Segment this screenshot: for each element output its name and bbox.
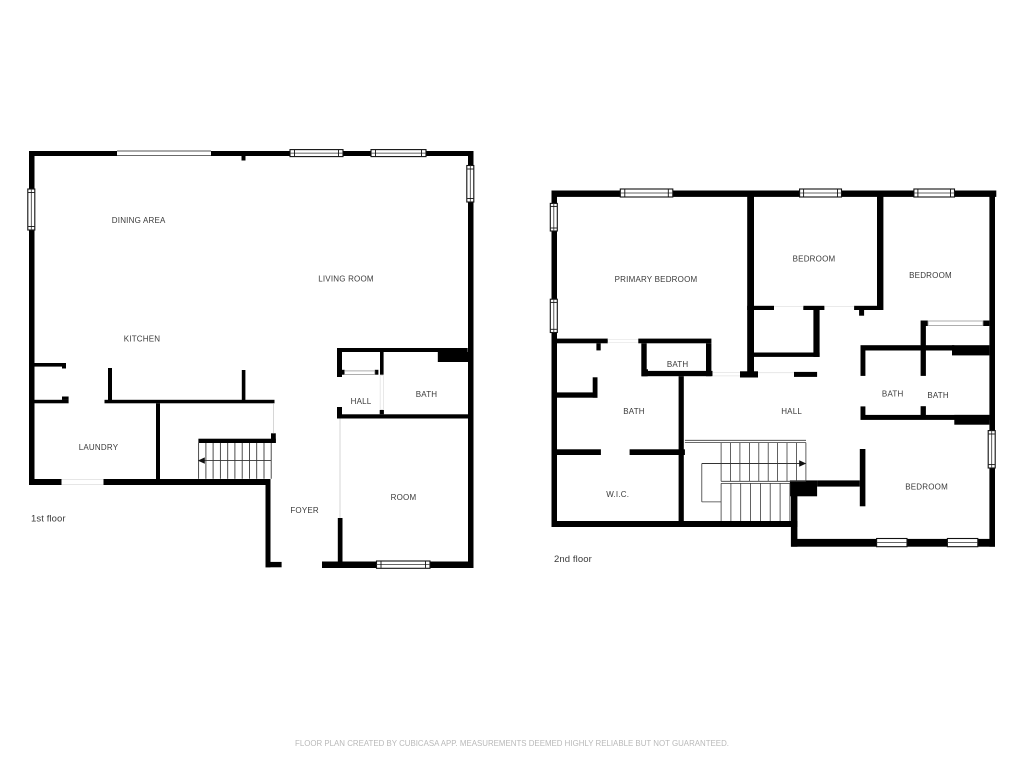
svg-text:BEDROOM: BEDROOM	[905, 483, 948, 492]
svg-text:PRIMARY BEDROOM: PRIMARY BEDROOM	[615, 275, 698, 284]
svg-text:1st floor: 1st floor	[31, 514, 66, 525]
svg-text:LAUNDRY: LAUNDRY	[79, 443, 119, 452]
svg-text:FLOOR PLAN CREATED BY CUBICASA: FLOOR PLAN CREATED BY CUBICASA APP. MEAS…	[295, 739, 729, 748]
svg-text:BATH: BATH	[623, 407, 645, 416]
svg-text:FOYER: FOYER	[290, 506, 319, 515]
svg-text:BATH: BATH	[416, 390, 438, 399]
svg-text:LIVING ROOM: LIVING ROOM	[318, 274, 374, 283]
svg-text:DINING AREA: DINING AREA	[112, 216, 166, 225]
svg-text:BATH: BATH	[667, 360, 689, 369]
svg-text:HALL: HALL	[351, 397, 372, 406]
svg-text:KITCHEN: KITCHEN	[124, 334, 161, 343]
svg-text:2nd floor: 2nd floor	[554, 554, 592, 565]
svg-text:BEDROOM: BEDROOM	[793, 255, 836, 264]
svg-text:ROOM: ROOM	[391, 493, 417, 502]
svg-text:BATH: BATH	[927, 391, 949, 400]
svg-text:BEDROOM: BEDROOM	[909, 271, 952, 280]
svg-text:W.I.C.: W.I.C.	[606, 490, 629, 499]
svg-text:HALL: HALL	[781, 407, 802, 416]
svg-text:BATH: BATH	[882, 390, 904, 399]
